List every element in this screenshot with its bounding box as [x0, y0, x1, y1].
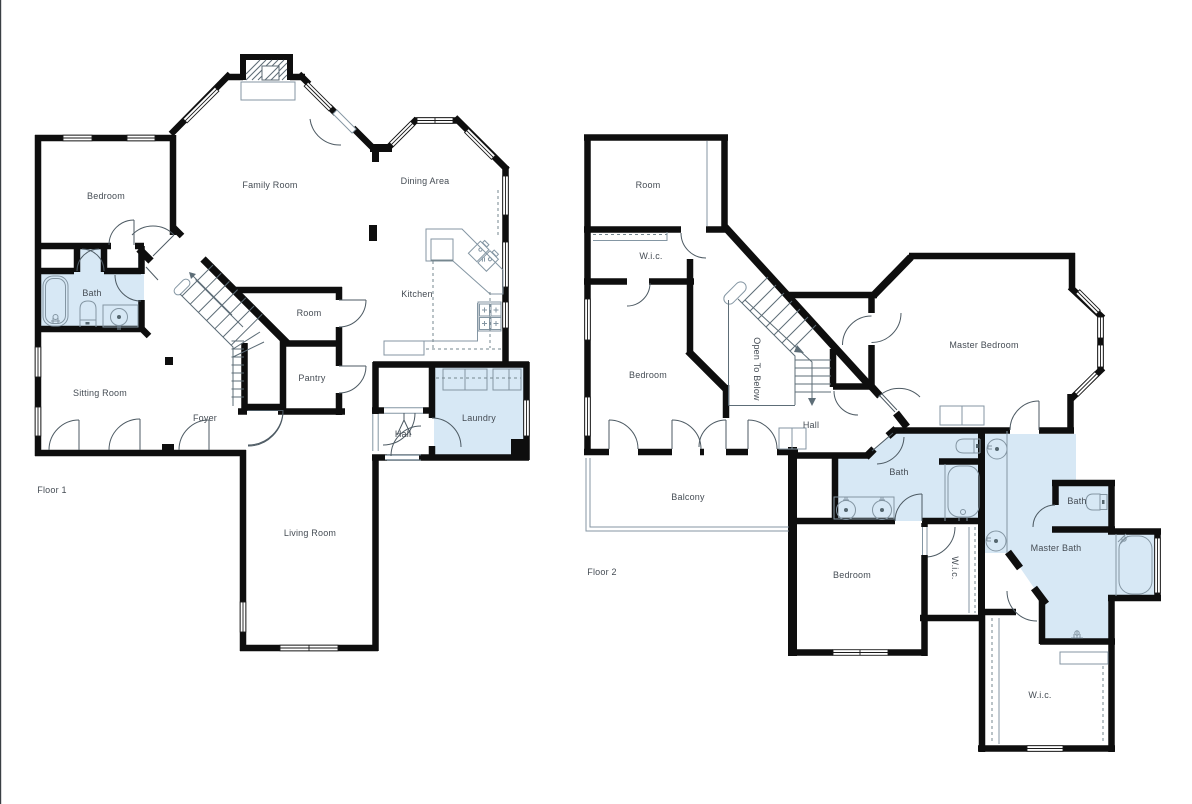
- svg-text:Floor 2: Floor 2: [587, 567, 616, 577]
- svg-text:W.i.c.: W.i.c.: [1028, 690, 1051, 700]
- svg-text:Bath: Bath: [1067, 496, 1086, 506]
- svg-text:Room: Room: [636, 180, 661, 190]
- svg-text:Dining Area: Dining Area: [401, 176, 450, 186]
- svg-text:Balcony: Balcony: [671, 492, 705, 502]
- svg-text:W.i.c.: W.i.c.: [639, 251, 662, 261]
- svg-text:Foyer: Foyer: [193, 413, 217, 423]
- svg-text:Bedroom: Bedroom: [629, 370, 667, 380]
- svg-text:Kitchen: Kitchen: [401, 289, 432, 299]
- svg-text:Bath: Bath: [82, 288, 101, 298]
- svg-text:Master Bath: Master Bath: [1031, 543, 1082, 553]
- svg-text:Open To Below: Open To Below: [752, 337, 762, 401]
- svg-text:Room: Room: [297, 308, 322, 318]
- svg-text:Family Room: Family Room: [242, 180, 297, 190]
- svg-text:Hall: Hall: [803, 420, 819, 430]
- svg-text:Master Bedroom: Master Bedroom: [949, 340, 1018, 350]
- svg-text:Bedroom: Bedroom: [87, 191, 125, 201]
- svg-text:Bath: Bath: [889, 467, 908, 477]
- svg-text:Living Room: Living Room: [284, 528, 336, 538]
- svg-text:Bedroom: Bedroom: [833, 570, 871, 580]
- svg-text:W.i.c.: W.i.c.: [950, 556, 960, 579]
- svg-text:Floor 1: Floor 1: [37, 485, 66, 495]
- svg-text:Pantry: Pantry: [298, 373, 326, 383]
- svg-text:Sitting Room: Sitting Room: [73, 388, 127, 398]
- svg-text:Hall: Hall: [395, 429, 411, 439]
- svg-text:Laundry: Laundry: [462, 413, 496, 423]
